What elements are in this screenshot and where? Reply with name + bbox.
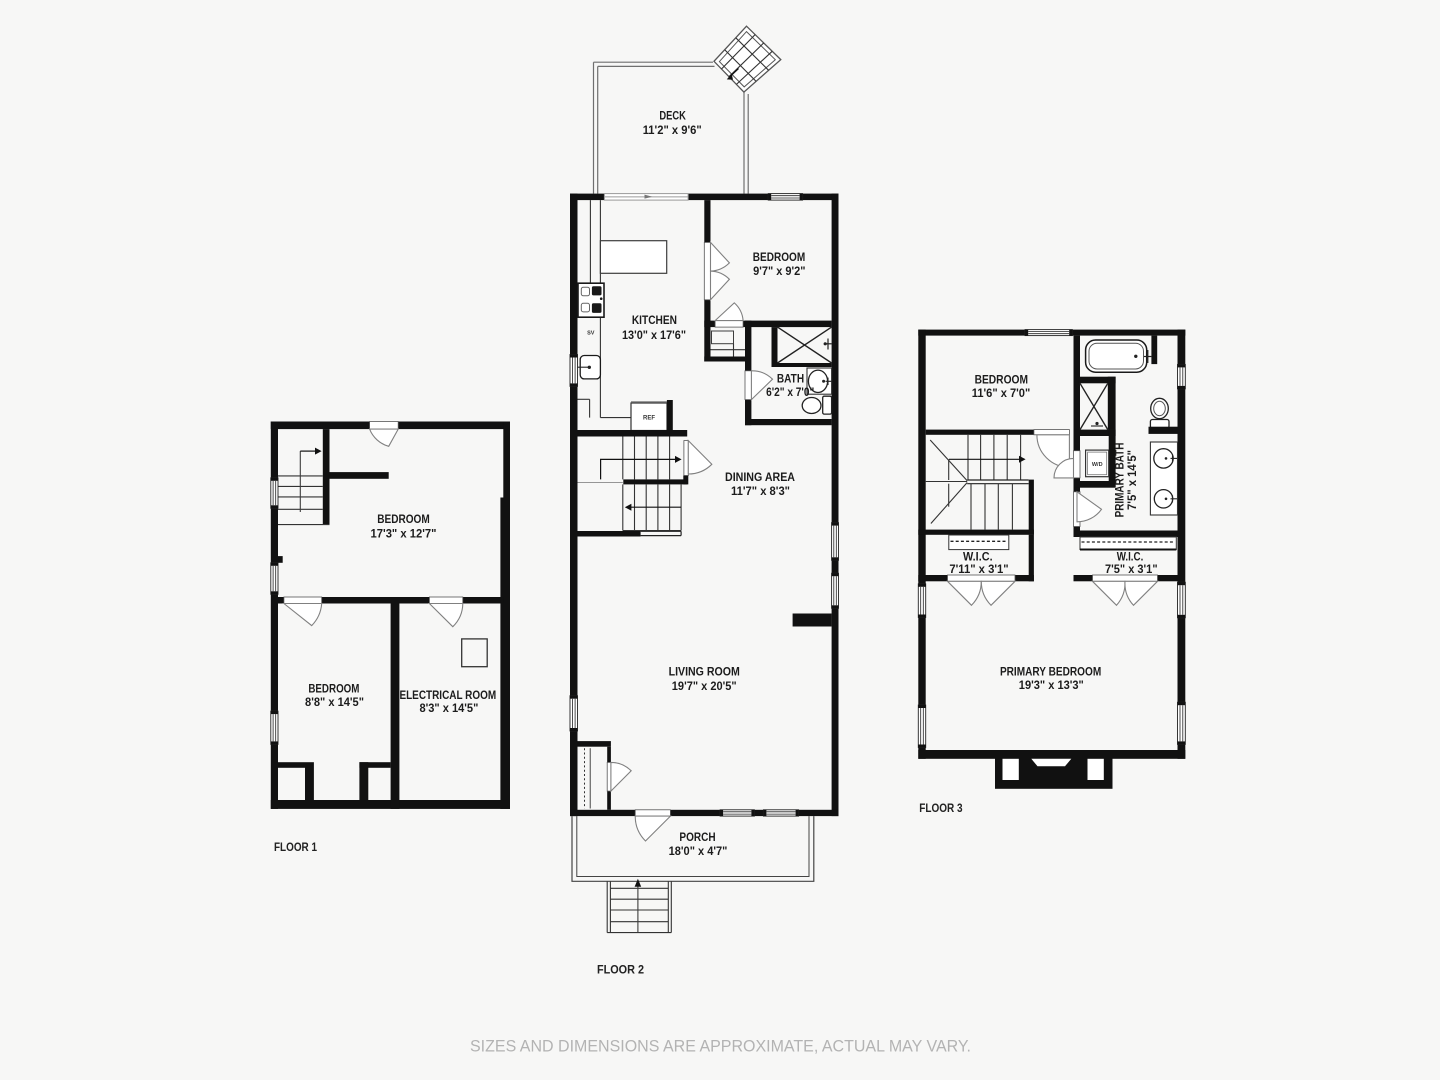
svg-text:REF: REF [643, 416, 655, 422]
svg-text:DINING AREA: DINING AREA [725, 470, 795, 484]
svg-text:9'7" x 9'2": 9'7" x 9'2" [753, 264, 805, 278]
svg-text:FLOOR 1: FLOOR 1 [274, 842, 318, 854]
svg-text:PRIMARY BEDROOM: PRIMARY BEDROOM [1000, 665, 1101, 679]
svg-text:7'5" x 3'1": 7'5" x 3'1" [1105, 562, 1158, 576]
svg-text:8'8" x 14'5": 8'8" x 14'5" [305, 695, 364, 709]
svg-text:11'2" x 9'6": 11'2" x 9'6" [643, 123, 702, 137]
svg-text:8'3" x 14'5": 8'3" x 14'5" [419, 701, 478, 715]
svg-text:6'2" x 7'0": 6'2" x 7'0" [766, 385, 814, 399]
svg-text:DECK: DECK [659, 109, 686, 123]
svg-text:ELECTRICAL ROOM: ELECTRICAL ROOM [399, 688, 496, 702]
svg-text:11'6" x 7'0": 11'6" x 7'0" [972, 386, 1031, 400]
svg-text:BEDROOM: BEDROOM [377, 512, 430, 526]
svg-text:13'0" x 17'6": 13'0" x 17'6" [622, 328, 686, 342]
svg-text:7'5" x 14'5": 7'5" x 14'5" [1125, 450, 1139, 510]
svg-text:SV: SV [587, 331, 595, 337]
svg-text:FLOOR 3: FLOOR 3 [919, 803, 962, 815]
svg-text:BEDROOM: BEDROOM [753, 250, 805, 264]
svg-text:KITCHEN: KITCHEN [632, 313, 677, 327]
svg-text:LIVING ROOM: LIVING ROOM [669, 665, 740, 679]
svg-text:19'3" x 13'3": 19'3" x 13'3" [1019, 678, 1084, 692]
svg-text:19'7" x 20'5": 19'7" x 20'5" [672, 679, 737, 693]
svg-text:7'11" x 3'1": 7'11" x 3'1" [949, 562, 1008, 576]
svg-text:SIZES AND DIMENSIONS ARE APPRO: SIZES AND DIMENSIONS ARE APPROXIMATE, AC… [470, 1037, 971, 1056]
svg-text:11'7" x 8'3": 11'7" x 8'3" [731, 484, 790, 498]
svg-text:BEDROOM: BEDROOM [975, 372, 1028, 386]
svg-text:18'0" x 4'7": 18'0" x 4'7" [669, 844, 728, 858]
svg-text:W/D: W/D [1092, 462, 1103, 468]
svg-text:BATH: BATH [777, 372, 804, 386]
svg-text:BEDROOM: BEDROOM [308, 682, 359, 696]
svg-text:FLOOR 2: FLOOR 2 [597, 965, 644, 977]
svg-text:PORCH: PORCH [679, 830, 715, 844]
svg-text:17'3" x 12'7": 17'3" x 12'7" [371, 527, 437, 541]
